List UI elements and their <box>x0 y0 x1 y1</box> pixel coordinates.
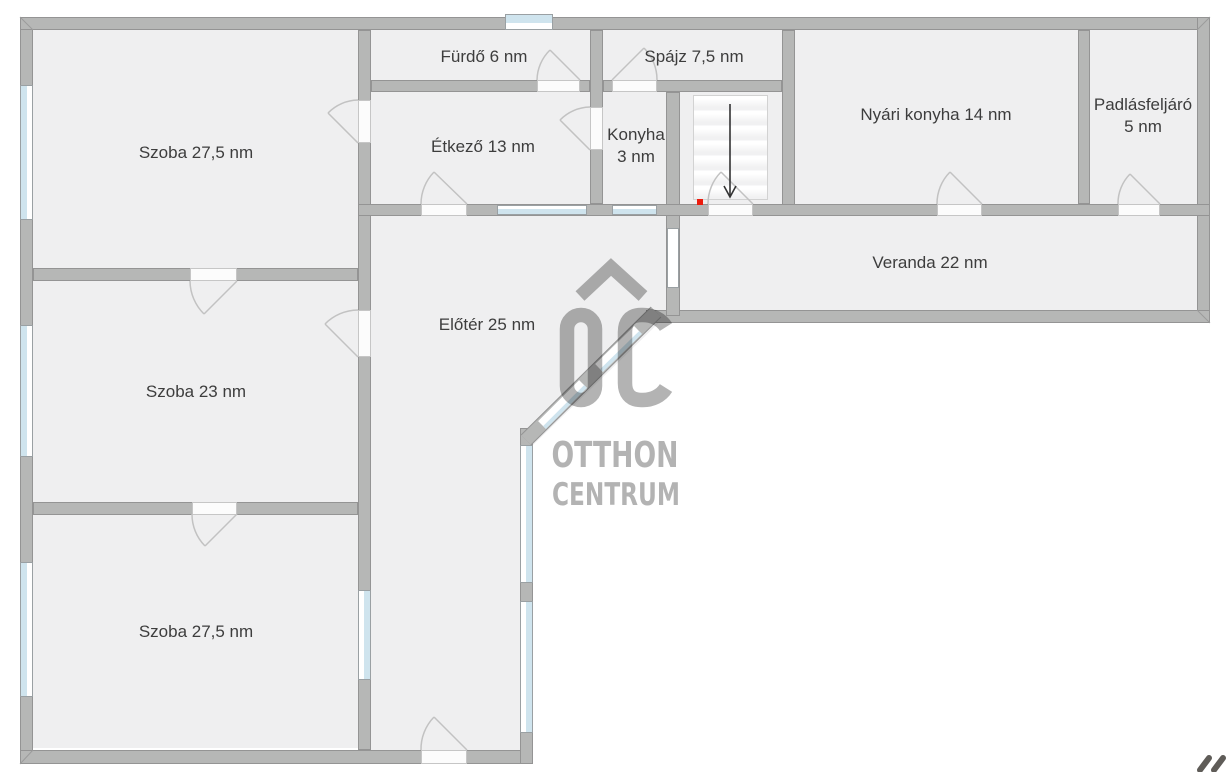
door-opening <box>421 750 467 764</box>
window <box>20 562 33 697</box>
wall <box>782 30 795 216</box>
window <box>20 85 33 220</box>
room-label-szoba-top: Szoba 27,5 nm <box>139 142 253 164</box>
diagonal-window <box>602 333 641 371</box>
room-label-padlas-line1: Padlásfeljáró <box>1094 95 1192 114</box>
red-marker <box>697 199 703 205</box>
room-label-padlas-line2: 5 nm <box>1124 117 1162 136</box>
room-label-furdo: Fürdő 6 nm <box>441 46 528 68</box>
door-opening <box>358 100 371 143</box>
door-opening <box>421 204 467 216</box>
roof-icon <box>580 267 643 296</box>
room-label-spajz: Spájz 7,5 nm <box>644 46 743 68</box>
room-label-konyha-line2: 3 nm <box>617 147 655 166</box>
floor-plan: Szoba 27,5 nm Fürdő 6 nm Spájz 7,5 nm Ét… <box>0 0 1226 772</box>
door-opening <box>1118 204 1160 216</box>
wall <box>1078 30 1090 204</box>
door-opening <box>358 310 371 357</box>
room-label-etkezo: Étkező 13 nm <box>431 136 535 158</box>
window <box>667 228 679 288</box>
wall <box>358 204 1210 216</box>
room-label-szoba-mid: Szoba 23 nm <box>146 381 246 403</box>
room-label-padlasfeljaro: Padlásfeljáró 5 nm <box>1094 94 1192 138</box>
room-label-konyha-line1: Konyha <box>607 125 665 144</box>
watermark-otthon-text: OTTHON <box>552 435 679 476</box>
diagonal-window <box>545 387 586 428</box>
corner-watermark-icon <box>1200 758 1223 770</box>
window <box>520 601 533 733</box>
door-opening <box>537 80 580 92</box>
door-opening <box>612 80 657 92</box>
diagonal-wall <box>526 312 656 440</box>
window <box>497 205 587 215</box>
room-label-nyari-konyha: Nyári konyha 14 nm <box>860 104 1011 126</box>
room-label-eloter: Előtér 25 nm <box>439 314 535 336</box>
room-label-szoba-bottom: Szoba 27,5 nm <box>139 621 253 643</box>
room-label-veranda: Veranda 22 nm <box>872 252 987 274</box>
window <box>520 445 533 583</box>
wall <box>1197 17 1210 323</box>
door-opening <box>192 502 237 515</box>
staircase <box>693 95 768 200</box>
window <box>612 205 657 215</box>
door-opening <box>937 204 982 216</box>
door-opening <box>590 107 603 150</box>
door-opening <box>708 204 753 216</box>
door-opening <box>190 268 237 281</box>
wall <box>20 17 1210 30</box>
room-label-konyha: Konyha 3 nm <box>607 124 665 168</box>
wall <box>646 310 1210 323</box>
watermark-centrum-text: CENTRUM <box>552 477 680 513</box>
window <box>358 590 371 680</box>
oc-monogram-icon <box>567 267 666 400</box>
window <box>20 325 33 457</box>
window <box>505 14 553 30</box>
